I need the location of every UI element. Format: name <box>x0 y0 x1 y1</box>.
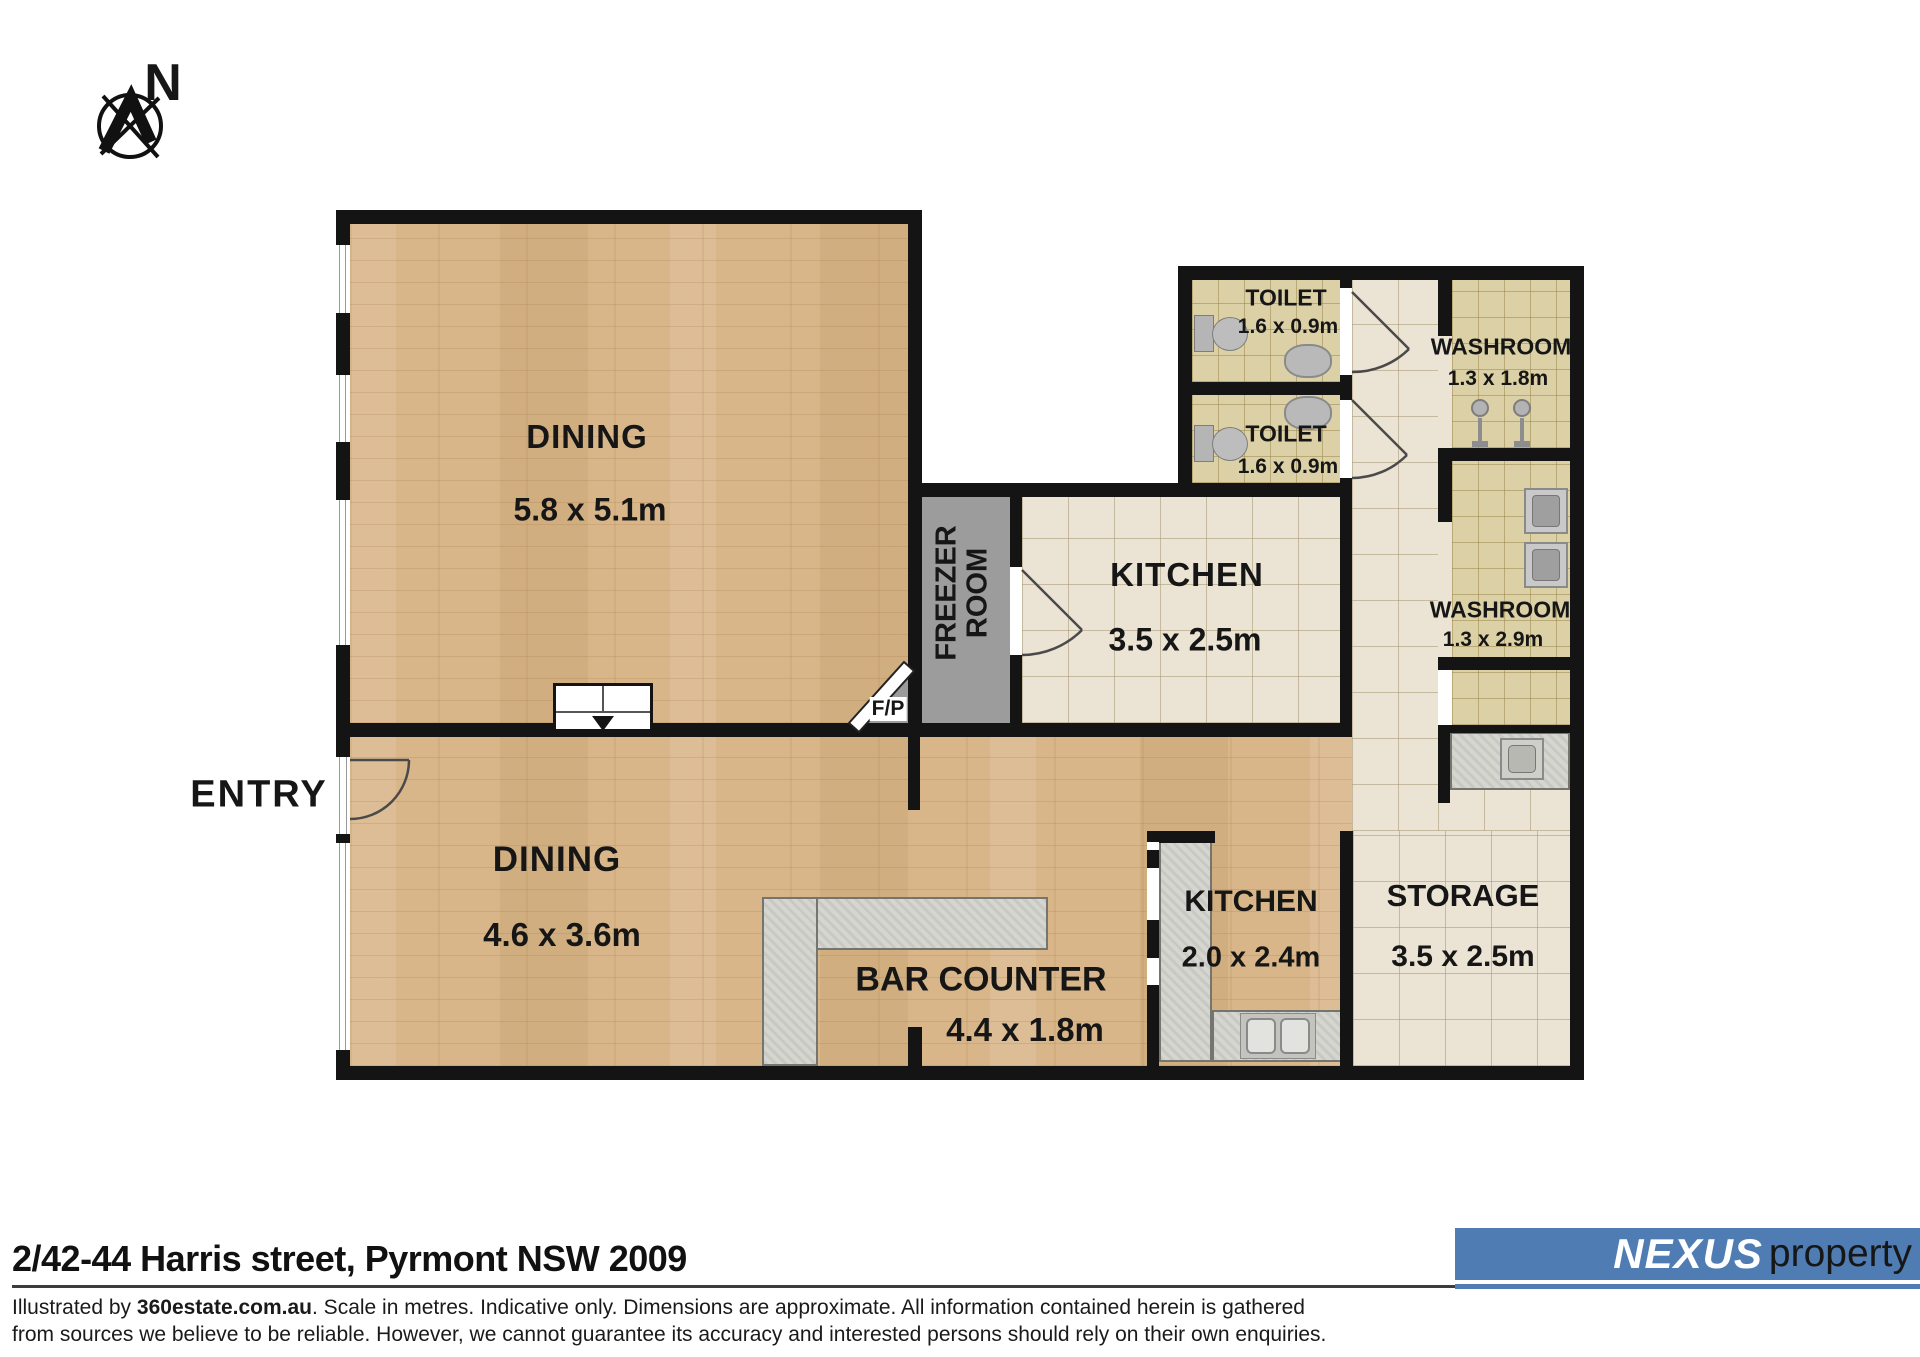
shower-base-icon <box>1514 441 1530 447</box>
room-dims-washroom-2: 1.3 x 2.9m <box>1443 628 1543 652</box>
window <box>336 843 350 1050</box>
toilet-cistern-icon <box>1194 425 1214 462</box>
servery-slot <box>1147 958 1159 985</box>
wall-toilet-block-top <box>1178 266 1584 280</box>
room-dims-bar-counter: 4.4 x 1.8m <box>946 1011 1104 1049</box>
room-dims-washroom-1: 1.3 x 1.8m <box>1448 367 1548 391</box>
stairs-divider <box>556 711 650 713</box>
toilet1-door-opening <box>1340 288 1352 375</box>
wall-nook-top <box>1438 725 1570 733</box>
freezer-line2: ROOM <box>963 525 994 660</box>
wall-kitchen-lower-left <box>1147 831 1159 1066</box>
disclaimer-line1: Illustrated by 360estate.com.au. Scale i… <box>12 1295 1326 1322</box>
room-name-kitchen-lower: KITCHEN <box>1184 885 1317 919</box>
room-name-washroom-1: WASHROOM <box>1431 334 1572 361</box>
room-name-storage: STORAGE <box>1387 878 1540 914</box>
wall-top <box>336 210 922 224</box>
toilet2-door-opening <box>1340 400 1352 478</box>
sink-bowl-icon <box>1280 1018 1310 1054</box>
wall-stub-below-divider <box>908 737 920 810</box>
wall-mid-divider <box>336 723 1352 737</box>
shower-base-icon <box>1472 441 1488 447</box>
floor-washroom-1 <box>1452 280 1570 448</box>
servery-slot <box>1147 842 1159 850</box>
wall-bar-stub <box>908 1027 922 1066</box>
floorplan-page: N DINING 5.8 x 5.1m DINING 4.6 x 3.6m KI… <box>0 0 1920 1357</box>
floor-kitchen-upper <box>1022 497 1340 723</box>
bar-counter-left <box>762 897 818 1066</box>
disclaimer-prefix: Illustrated by <box>12 1296 137 1319</box>
wall-toilet-divider <box>1192 382 1352 395</box>
room-name-toilet-1: TOILET <box>1245 285 1326 312</box>
window <box>336 245 350 313</box>
wall-washroom2-bottom <box>1438 657 1584 670</box>
room-name-kitchen-upper: KITCHEN <box>1110 556 1264 594</box>
shower-head-icon <box>1513 399 1531 417</box>
sink-bowl-icon <box>1246 1018 1276 1054</box>
servery-slot <box>1147 868 1159 920</box>
wall-kitchen-top <box>908 483 1352 497</box>
room-dims-dining-upper: 5.8 x 5.1m <box>514 492 667 529</box>
logo-brand: nexus <box>1613 1230 1763 1278</box>
room-dims-storage: 3.5 x 2.5m <box>1391 940 1534 974</box>
stairs <box>553 683 653 732</box>
wall-storage-left <box>1340 831 1353 1066</box>
shower-stem-icon <box>1478 418 1482 442</box>
basin-icon <box>1284 344 1332 378</box>
room-name-freezer: FREEZER ROOM <box>932 525 995 660</box>
wall-washroom1-bottom <box>1438 448 1584 461</box>
compass-north-label: N <box>144 53 182 113</box>
wall-right <box>1570 266 1584 1080</box>
freezer-line1: FREEZER <box>932 525 963 660</box>
room-dims-kitchen-upper: 3.5 x 2.5m <box>1109 622 1262 659</box>
freezer-door-opening <box>1010 567 1022 655</box>
disclaimer-rest: . Scale in metres. Indicative only. Dime… <box>312 1296 1305 1319</box>
floor-dining-upper <box>350 224 908 723</box>
room-name-dining-lower: DINING <box>493 840 622 880</box>
disclaimer-brand: 360estate.com.au <box>137 1296 312 1319</box>
logo-suffix: property <box>1769 1232 1912 1276</box>
disclaimer-line2: from sources we believe to be reliable. … <box>12 1322 1326 1349</box>
footer-disclaimer: Illustrated by 360estate.com.au. Scale i… <box>12 1295 1326 1348</box>
stairs-arrow-icon <box>592 716 614 731</box>
agency-logo: nexusproperty <box>1455 1228 1920 1280</box>
shower-head-icon <box>1471 399 1489 417</box>
room-dims-dining-lower: 4.6 x 3.6m <box>483 916 641 954</box>
entry-door-opening <box>336 757 350 834</box>
room-name-toilet-2: TOILET <box>1245 421 1326 448</box>
shower-stem-icon <box>1520 418 1524 442</box>
wall-washroom2-left <box>1438 461 1452 522</box>
sink-unit-inner-icon <box>1532 495 1560 527</box>
floor-corridor <box>1352 280 1438 831</box>
room-dims-toilet-1: 1.6 x 0.9m <box>1238 315 1338 339</box>
entry-label: ENTRY <box>190 774 327 817</box>
room-dims-kitchen-lower: 2.0 x 2.4m <box>1182 942 1321 975</box>
wall-dining-right <box>908 210 922 737</box>
stairs-divider <box>602 686 604 711</box>
sink-unit-inner-icon <box>1532 549 1560 581</box>
wall-nook-left <box>1438 725 1450 803</box>
room-name-bar-counter: BAR COUNTER <box>855 961 1106 1000</box>
fireplace-label: F/P <box>870 697 907 721</box>
sink-inner-icon <box>1508 745 1536 773</box>
wall-bottom <box>336 1066 1584 1080</box>
room-dims-toilet-2: 1.6 x 0.9m <box>1238 455 1338 479</box>
footer-divider <box>12 1285 1455 1288</box>
window <box>336 375 350 442</box>
wall-washroom1-left <box>1438 280 1452 336</box>
wall-toilet-block-left <box>1178 266 1192 497</box>
footer-address: 2/42-44 Harris street, Pyrmont NSW 2009 <box>12 1238 687 1280</box>
toilet-cistern-icon <box>1194 315 1214 352</box>
window <box>336 500 350 645</box>
agency-logo-underline <box>1455 1284 1920 1289</box>
room-name-washroom-2: WASHROOM <box>1430 597 1571 624</box>
floor-nook-lower <box>1438 790 1570 831</box>
room-name-dining-upper: DINING <box>526 418 648 456</box>
